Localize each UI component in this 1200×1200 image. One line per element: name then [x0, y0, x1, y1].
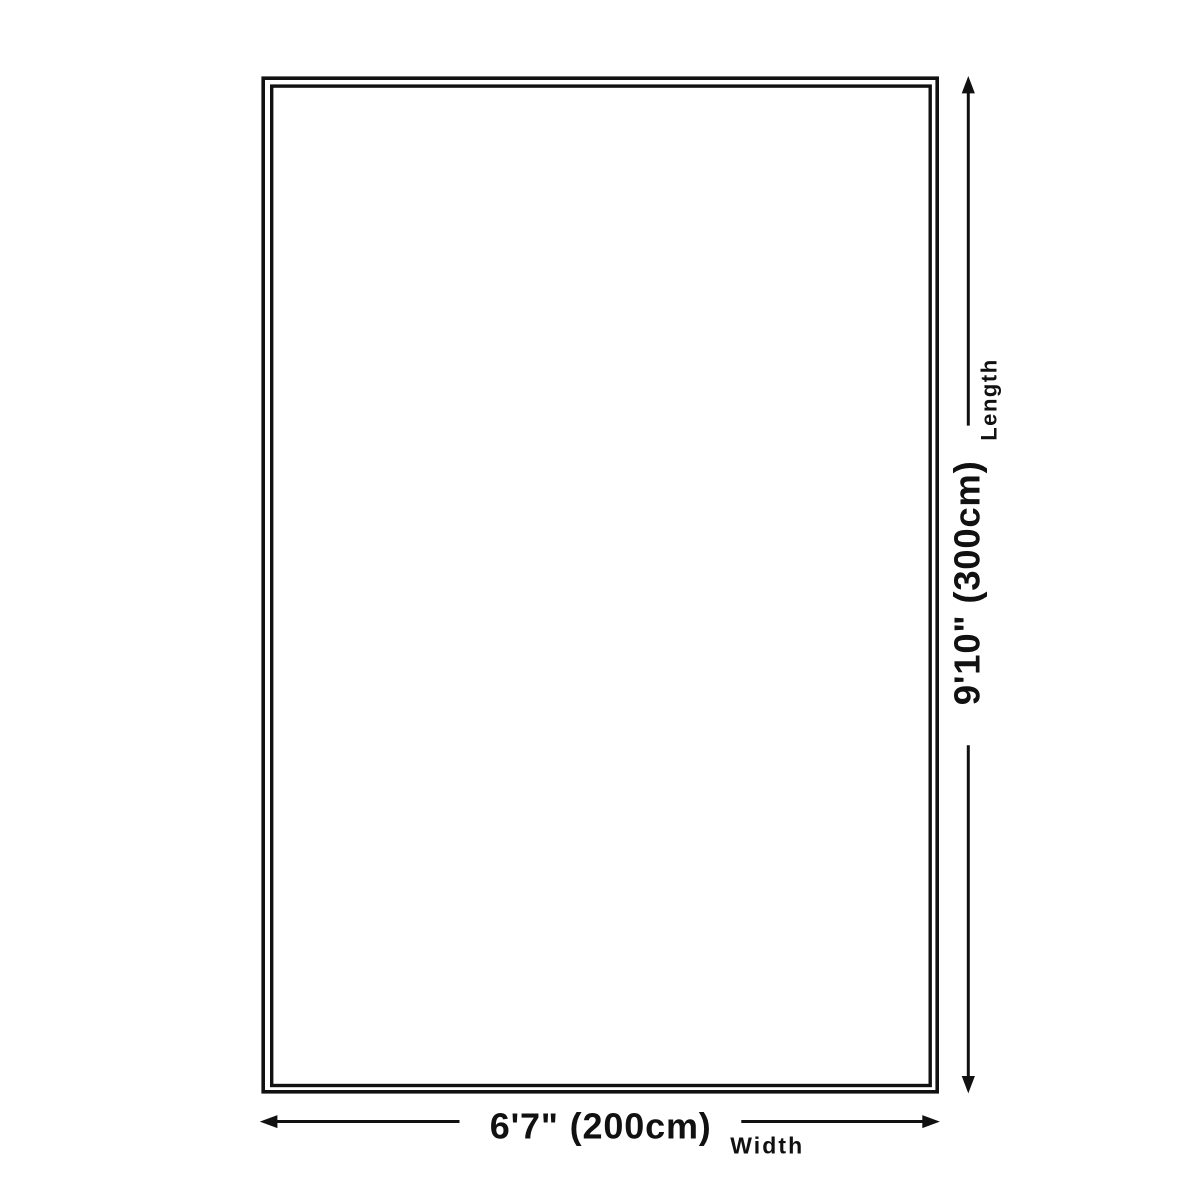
- svg-text:6'7" (200cm): 6'7" (200cm): [490, 1106, 711, 1147]
- svg-text:Length: Length: [976, 360, 1001, 441]
- svg-text:Width: Width: [730, 1133, 802, 1159]
- svg-text:9'10" (300cm): 9'10" (300cm): [946, 461, 987, 705]
